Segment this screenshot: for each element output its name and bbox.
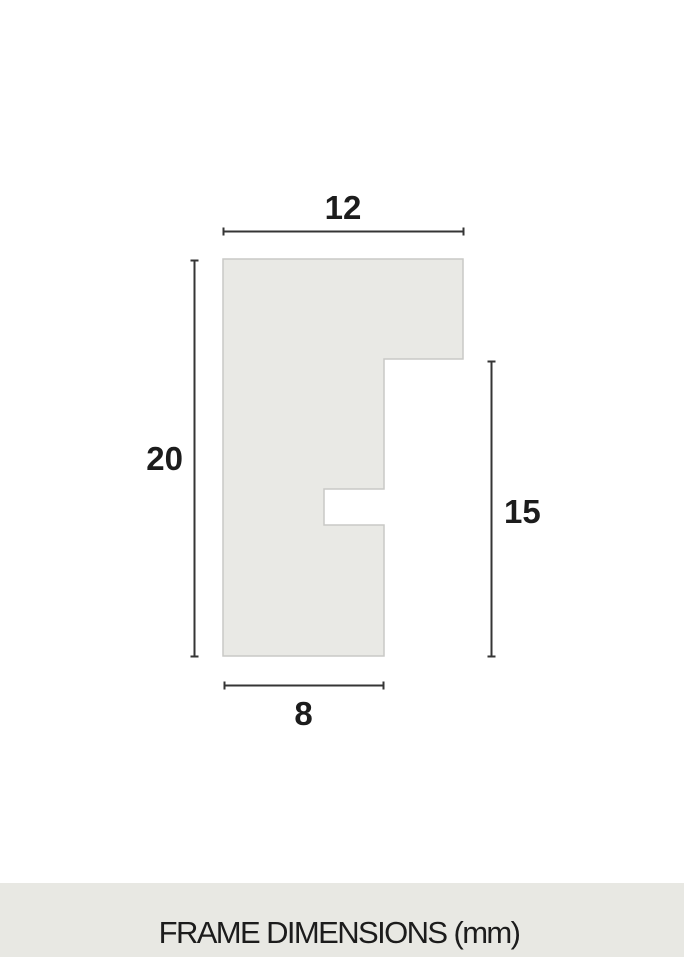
svg-text:15: 15 — [504, 493, 541, 530]
svg-text:8: 8 — [294, 695, 312, 732]
svg-text:12: 12 — [325, 189, 362, 226]
svg-text:20: 20 — [146, 440, 183, 477]
